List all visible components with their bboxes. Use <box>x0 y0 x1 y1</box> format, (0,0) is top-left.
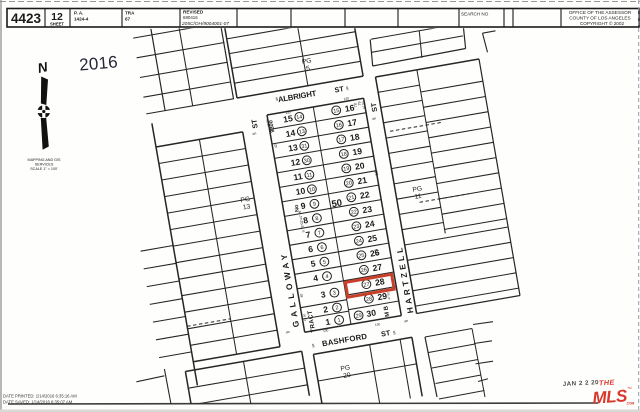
svg-text:20: 20 <box>354 160 365 172</box>
svg-text:P. A.: P. A. <box>74 11 83 16</box>
svg-text:SCALE 1" = 100': SCALE 1" = 100' <box>30 167 58 171</box>
svg-text:11: 11 <box>306 172 313 179</box>
svg-text:14: 14 <box>296 114 303 121</box>
svg-text:SERVICES: SERVICES <box>35 163 54 167</box>
svg-text:21: 21 <box>348 195 355 202</box>
svg-text:MAPPING AND GIS: MAPPING AND GIS <box>28 158 62 162</box>
svg-text:23: 23 <box>353 224 360 231</box>
svg-text:COPYRIGHT © 2002: COPYRIGHT © 2002 <box>580 20 625 26</box>
svg-text:30: 30 <box>303 158 310 165</box>
svg-text:18: 18 <box>340 151 347 158</box>
svg-text:15: 15 <box>333 108 340 115</box>
svg-text:24: 24 <box>364 218 375 230</box>
svg-text:15: 15 <box>282 113 293 125</box>
svg-text:11: 11 <box>293 171 304 182</box>
svg-text:19: 19 <box>352 146 363 158</box>
svg-text:13: 13 <box>242 203 251 211</box>
svg-text:MLS: MLS <box>592 386 629 407</box>
svg-text:25: 25 <box>358 253 365 260</box>
svg-text:30: 30 <box>366 307 377 319</box>
svg-text:20: 20 <box>343 372 352 380</box>
svg-text:TM: TM <box>627 386 632 390</box>
svg-text:20: 20 <box>345 180 352 187</box>
svg-text:OFFICE OF THE ASSESSOR: OFFICE OF THE ASSESSOR <box>569 10 632 15</box>
svg-text:31: 31 <box>301 143 308 150</box>
svg-text:67: 67 <box>125 17 131 22</box>
svg-text:THE: THE <box>599 377 615 387</box>
svg-text:2016: 2016 <box>78 52 118 74</box>
svg-text:42: 42 <box>274 144 279 149</box>
svg-text:26: 26 <box>360 267 367 274</box>
svg-text:27: 27 <box>372 262 383 274</box>
svg-text:11: 11 <box>414 193 422 201</box>
svg-text:29: 29 <box>355 313 362 320</box>
svg-text:1424-4: 1424-4 <box>74 17 89 22</box>
svg-text:COUNTY OF LOS ANGELES: COUNTY OF LOS ANGELES <box>569 16 630 21</box>
svg-text:22: 22 <box>350 209 357 216</box>
svg-text:680416: 680416 <box>183 15 198 20</box>
svg-text:TRA: TRA <box>125 11 135 16</box>
svg-text:28: 28 <box>366 296 373 303</box>
svg-text:22: 22 <box>359 189 370 201</box>
svg-text:.COM: .COM <box>626 402 635 406</box>
svg-text:SEARCH NO: SEARCH NO <box>461 12 489 17</box>
svg-text:19: 19 <box>343 166 350 173</box>
svg-text:18: 18 <box>349 131 360 143</box>
svg-text:13: 13 <box>287 142 298 154</box>
svg-text:12: 12 <box>290 156 301 168</box>
svg-text:REVISED: REVISED <box>183 10 204 15</box>
svg-text:24: 24 <box>355 238 362 245</box>
svg-text:10: 10 <box>295 185 306 197</box>
svg-text:50: 50 <box>331 198 343 211</box>
svg-text:SHEET: SHEET <box>50 22 64 27</box>
svg-text:17: 17 <box>338 137 345 144</box>
svg-text:17: 17 <box>347 117 358 129</box>
svg-text:27: 27 <box>363 282 370 289</box>
svg-text:16: 16 <box>335 122 342 129</box>
svg-text:13: 13 <box>298 129 305 136</box>
svg-text:4423: 4423 <box>11 11 42 26</box>
svg-text:14: 14 <box>285 128 296 140</box>
svg-text:25: 25 <box>367 233 378 245</box>
svg-text:21: 21 <box>357 175 368 187</box>
svg-text:205C/OH/9004001-07: 205C/OH/9004001-07 <box>181 21 229 27</box>
svg-text:23: 23 <box>362 204 373 216</box>
svg-text:10: 10 <box>308 187 315 194</box>
svg-text:DATE PRINTED: 1/14/2016 6:35:1: DATE PRINTED: 1/14/2016 6:35:16 AM <box>3 394 77 399</box>
svg-text:40: 40 <box>300 293 305 298</box>
